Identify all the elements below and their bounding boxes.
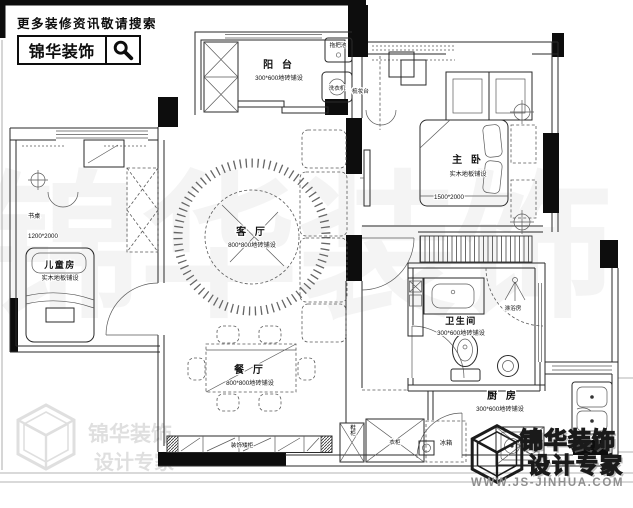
master-bed-dim: 1500*2000 xyxy=(434,194,464,201)
sofa-set xyxy=(300,130,347,342)
floorplan-page: 锦华装饰 锦华装饰 设计专家 xyxy=(0,0,633,508)
dining-chair xyxy=(217,394,239,411)
footer-brand-block: 锦华装饰 设计专家 WWW.JS-JINHUA.COM xyxy=(468,421,633,493)
kids-name: 儿童房 xyxy=(43,259,76,270)
living-name: 客 厅 xyxy=(235,225,268,238)
washing-machine: 洗衣机 xyxy=(322,72,352,102)
kids-bed-dim: 1200*2000 xyxy=(28,233,58,240)
washer-label: 洗衣机 xyxy=(329,84,346,92)
master-door-arc xyxy=(362,238,414,290)
master-floor-spec: 实木地板铺设 xyxy=(449,170,486,178)
entry-area: 鞋柜 衣柜 xyxy=(340,419,434,462)
kids-chair xyxy=(48,192,78,207)
room-bath: 淋浴房 卫生间 300*600地砖铺设 xyxy=(408,268,543,381)
bath-cabinet xyxy=(408,278,423,336)
kids-wardrobe xyxy=(127,168,158,252)
kids-door-arc xyxy=(106,283,158,335)
shower-area: 淋浴房 xyxy=(486,268,543,326)
search-icon xyxy=(107,39,139,61)
dining-chair xyxy=(298,358,315,380)
master-name: 主 卧 xyxy=(452,153,484,166)
radiator xyxy=(420,236,532,262)
kids-desk xyxy=(84,140,124,167)
kids-floor-spec: 实木地板铺设 xyxy=(41,274,78,282)
mop-pool-label: 拖把池 xyxy=(330,41,347,49)
toilet xyxy=(451,334,480,382)
cube-logo-icon xyxy=(468,423,526,485)
structural-walls xyxy=(0,0,618,466)
desk-label: 书桌 xyxy=(28,212,40,220)
shoe-cabinet-label: 鞋柜 xyxy=(349,423,356,437)
low-cabinet-label: 装饰矮柜 xyxy=(231,441,254,449)
dresser-label: 梳妆台 xyxy=(352,87,369,95)
living-floor-spec: 800*800地砖铺设 xyxy=(228,241,276,249)
shoe-cabinet: 鞋柜 xyxy=(340,423,364,462)
dining-name: 餐 厅 xyxy=(233,363,266,376)
dining-chair xyxy=(259,326,281,343)
entry-wardrobe: 衣柜 xyxy=(366,419,424,462)
bath-floor-spec: 300*600地砖铺设 xyxy=(437,329,485,337)
fridge-label: 冰箱 xyxy=(440,439,452,447)
low-cabinet: 装饰矮柜 xyxy=(167,436,332,453)
header-brand-block: 更多装修资讯敬请搜索 锦华装饰 xyxy=(17,13,157,65)
balcony-floor-spec: 300*600地砖铺设 xyxy=(255,74,303,82)
kitchen-floor-spec: 300*600地砖铺设 xyxy=(476,405,524,413)
search-notice: 更多装修资讯敬请搜索 xyxy=(17,13,157,32)
balcony-name: 阳 台 xyxy=(263,58,295,71)
gas-meter xyxy=(419,441,434,455)
dressing-table xyxy=(366,52,426,130)
exterior-lines xyxy=(0,40,633,482)
entry-wardrobe-label: 衣柜 xyxy=(389,438,401,446)
nightstand xyxy=(511,180,536,218)
bath-vanity xyxy=(424,278,484,314)
room-master: 梳妆台 主 卧 实木地板铺设 1500*20 xyxy=(352,52,536,234)
footer-website: WWW.JS-JINHUA.COM xyxy=(471,477,624,489)
bath-name: 卫生间 xyxy=(445,315,477,326)
master-lamp xyxy=(510,210,534,234)
dining-chair xyxy=(259,394,281,411)
kids-ceiling-lamp xyxy=(28,170,48,190)
kitchen-name: 厨 房 xyxy=(487,389,519,402)
dining-chair xyxy=(188,358,205,380)
room-dining: 餐 厅 800*800地砖铺设 xyxy=(188,326,315,411)
brand-logo-box: 锦华装饰 xyxy=(17,35,141,65)
dining-chair xyxy=(217,326,239,343)
shower-label: 淋浴房 xyxy=(505,304,522,312)
room-living: 装饰矮柜 客 厅 800*800地砖铺设 xyxy=(167,130,370,453)
floor-drain xyxy=(498,356,519,377)
mop-pool: 拖把池 xyxy=(325,38,352,62)
master-wardrobe xyxy=(446,72,532,120)
footer-tagline: 设计专家 xyxy=(528,448,624,480)
dining-floor-spec: 800*800地砖铺设 xyxy=(226,379,274,387)
room-kids: 书桌 1200*2000 儿童房 实木地板铺设 xyxy=(26,140,158,342)
nightstand xyxy=(511,125,536,163)
brand-name: 锦华装饰 xyxy=(19,38,105,62)
